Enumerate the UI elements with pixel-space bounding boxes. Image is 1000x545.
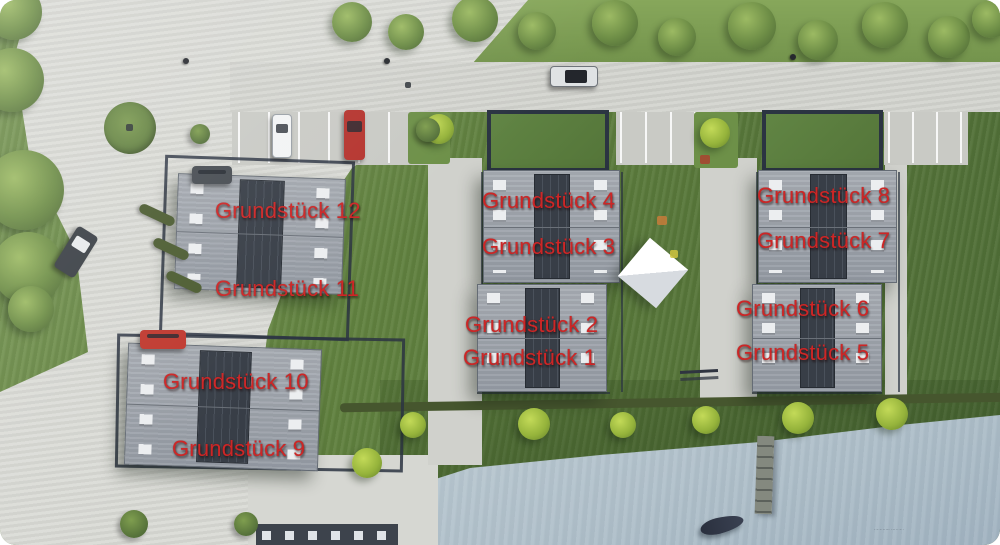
plot-labels: Grundstück 12Grundstück 11Grundstück 10G… (0, 0, 1000, 545)
site-plan-rendering: Grundstück 12Grundstück 11Grundstück 10G… (0, 0, 1000, 545)
plot-label-grundstueck-3: Grundstück 3 (482, 235, 615, 258)
plot-label-grundstueck-12: Grundstück 12 (215, 199, 361, 222)
plot-label-grundstueck-2: Grundstück 2 (465, 313, 598, 336)
plot-label-grundstueck-4: Grundstück 4 (482, 189, 615, 212)
plot-label-grundstueck-8: Grundstück 8 (757, 184, 890, 207)
plot-label-grundstueck-1: Grundstück 1 (463, 346, 596, 369)
plot-label-grundstueck-7: Grundstück 7 (757, 229, 890, 252)
plot-label-grundstueck-5: Grundstück 5 (736, 341, 869, 364)
plot-label-grundstueck-11: Grundstück 11 (215, 277, 359, 300)
plot-label-grundstueck-10: Grundstück 10 (163, 370, 309, 393)
plot-label-grundstueck-6: Grundstück 6 (736, 297, 869, 320)
plot-label-grundstueck-9: Grundstück 9 (172, 437, 305, 460)
watermark-line2: ··· ······· ···· ·· (874, 528, 901, 534)
